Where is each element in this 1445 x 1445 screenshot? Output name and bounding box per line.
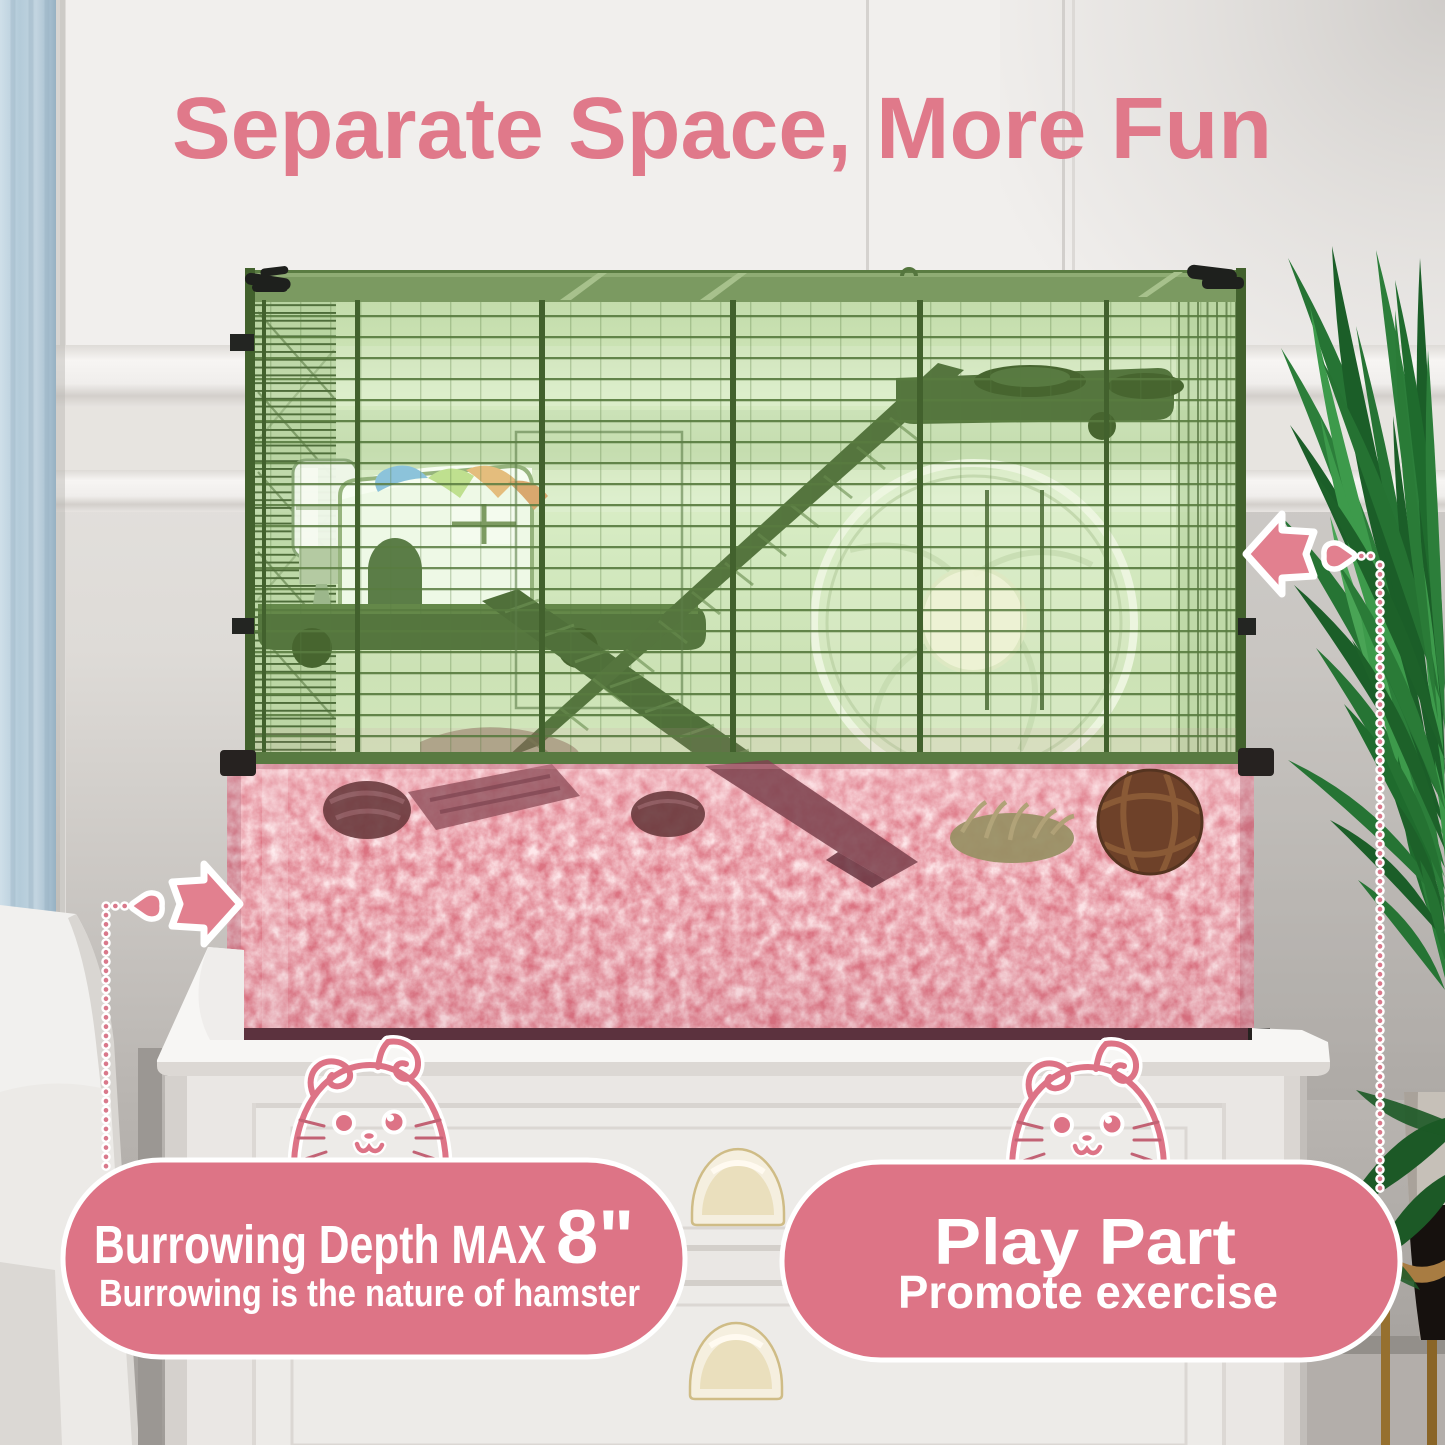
svg-text:Burrowing Depth MAX: Burrowing Depth MAX — [94, 1215, 546, 1275]
svg-text:Burrowing is the nature of ham: Burrowing is the nature of hamster — [99, 1273, 640, 1315]
svg-text:Separate Space, More Fun: Separate Space, More Fun — [172, 80, 1272, 177]
svg-text:8": 8" — [556, 1195, 634, 1280]
svg-text:Promote exercise: Promote exercise — [898, 1266, 1278, 1318]
